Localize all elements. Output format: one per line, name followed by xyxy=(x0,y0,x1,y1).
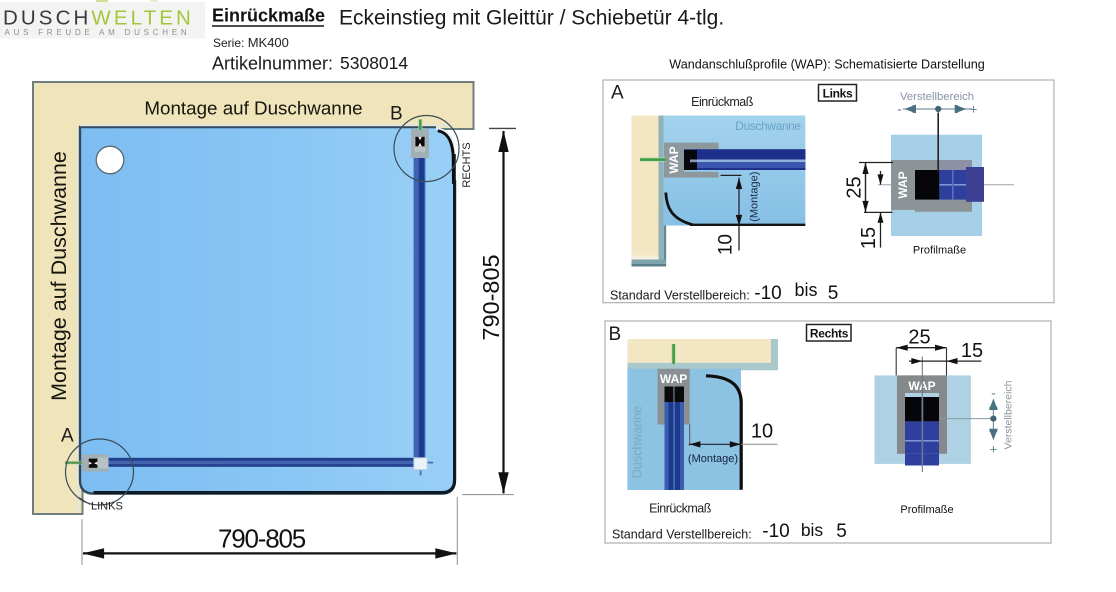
svg-text:DUSCHWELTEN: DUSCHWELTEN xyxy=(3,7,194,30)
svg-text:(Montage): (Montage) xyxy=(748,172,760,222)
svg-text:A: A xyxy=(61,426,74,447)
svg-text:Standard Verstellbereich:: Standard Verstellbereich: xyxy=(612,528,752,542)
svg-text:-: - xyxy=(991,385,996,401)
svg-text:-10: -10 xyxy=(754,283,781,304)
svg-text:RECHTS: RECHTS xyxy=(461,142,473,187)
svg-text:25: 25 xyxy=(844,176,866,198)
svg-text:-: - xyxy=(897,101,902,117)
svg-text:+: + xyxy=(970,102,978,117)
svg-text:LINKS: LINKS xyxy=(91,501,123,513)
svg-text:B: B xyxy=(609,324,622,345)
svg-text:Links: Links xyxy=(823,87,853,101)
svg-text:(Montage): (Montage) xyxy=(688,453,738,465)
svg-text:B: B xyxy=(390,104,403,125)
svg-text:Montage auf Duschwanne: Montage auf Duschwanne xyxy=(47,151,71,401)
svg-text:Rechts: Rechts xyxy=(810,327,849,341)
svg-text:Eckeinstieg mit Gleittür / Sch: Eckeinstieg mit Gleittür / Schiebetür 4-… xyxy=(339,7,724,30)
svg-text:Verstellbereich: Verstellbereich xyxy=(900,91,974,103)
svg-text:790-805: 790-805 xyxy=(478,254,504,340)
svg-text:Artikelnummer:: Artikelnummer: xyxy=(212,54,333,74)
svg-text:Einrückmaße: Einrückmaße xyxy=(212,6,325,26)
svg-text:+: + xyxy=(990,442,998,457)
svg-text:10: 10 xyxy=(751,421,773,443)
svg-text:25: 25 xyxy=(908,327,930,349)
svg-text:WAP: WAP xyxy=(667,146,681,173)
svg-text:Profilmaße: Profilmaße xyxy=(900,504,953,516)
svg-text:5308014: 5308014 xyxy=(340,53,408,73)
svg-text:Einrückmaß: Einrückmaß xyxy=(649,502,712,516)
svg-text:WAP: WAP xyxy=(896,171,910,198)
svg-text:Duschwanne: Duschwanne xyxy=(631,406,645,478)
svg-text:790-805: 790-805 xyxy=(218,524,306,554)
svg-text:15: 15 xyxy=(858,227,880,249)
svg-text:10: 10 xyxy=(715,234,736,255)
svg-text:WAP: WAP xyxy=(660,372,687,386)
svg-text:Einrückmaß: Einrückmaß xyxy=(691,95,754,109)
svg-text:bis: bis xyxy=(794,280,817,300)
svg-text:5: 5 xyxy=(836,521,847,542)
svg-text:Profilmaße: Profilmaße xyxy=(913,245,966,257)
svg-text:Verstellbereich: Verstellbereich xyxy=(1003,380,1015,449)
svg-text:Duschwanne: Duschwanne xyxy=(735,119,801,133)
svg-text:AUS FREUDE AM DUSCHEN: AUS FREUDE AM DUSCHEN xyxy=(5,28,191,37)
svg-text:Montage auf Duschwanne: Montage auf Duschwanne xyxy=(144,98,362,119)
svg-text:Standard Verstellbereich:: Standard Verstellbereich: xyxy=(610,289,750,303)
svg-text:15: 15 xyxy=(961,340,983,362)
svg-text:5: 5 xyxy=(828,283,839,304)
svg-text:A: A xyxy=(611,83,624,104)
svg-text:Wandanschlußprofile (WAP): Sch: Wandanschlußprofile (WAP): Schematisiert… xyxy=(669,58,984,72)
svg-text:-10: -10 xyxy=(762,521,789,542)
svg-text:Serie: MK400: Serie: MK400 xyxy=(213,35,289,50)
svg-text:bis: bis xyxy=(801,520,824,540)
